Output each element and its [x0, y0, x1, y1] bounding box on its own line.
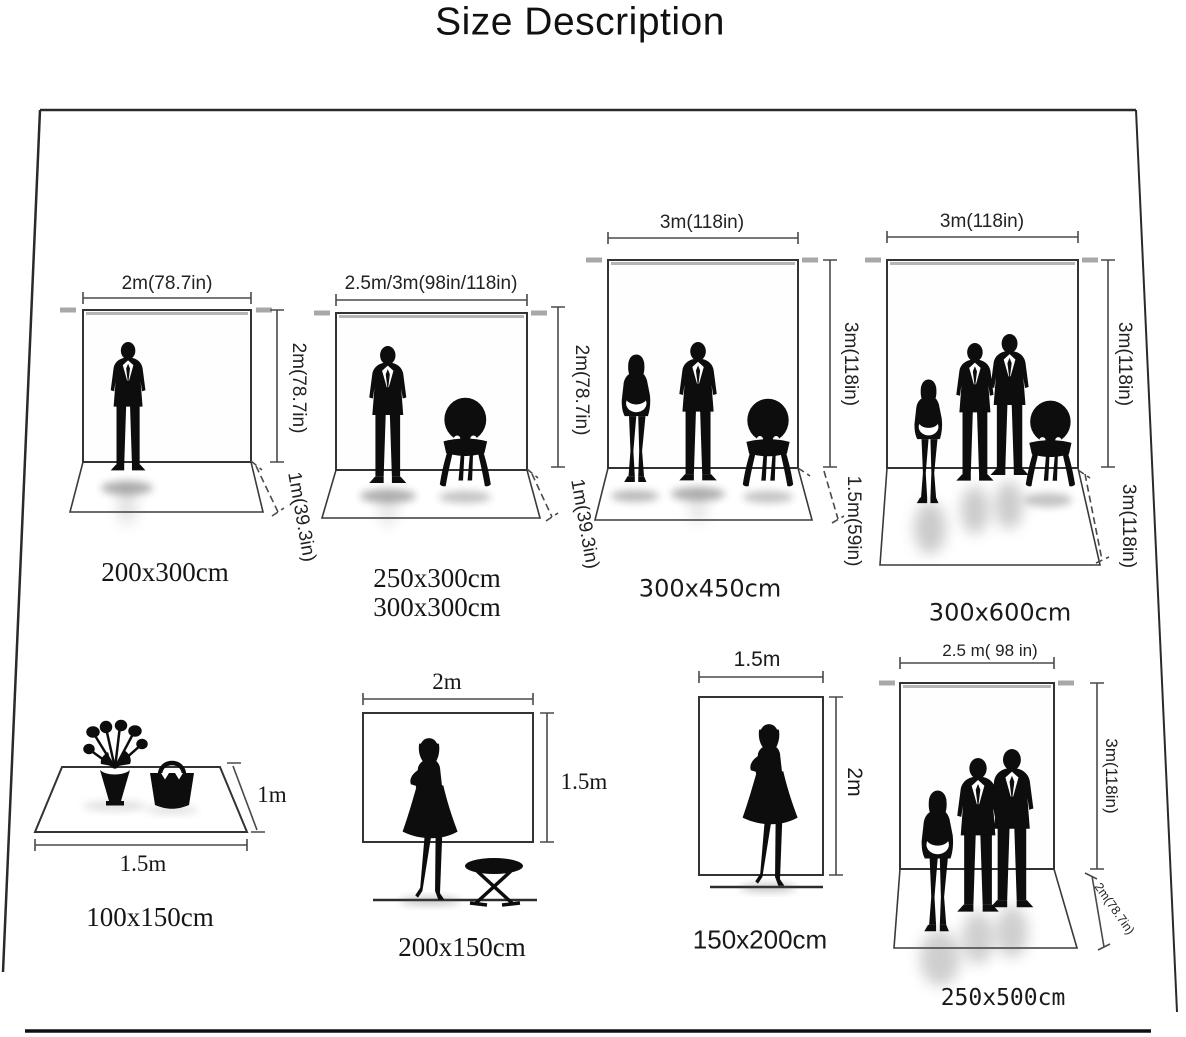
p7-height-dim-label: 2m: [843, 767, 865, 796]
p4-floor-dim-label: 3m(118in): [1118, 484, 1138, 568]
panel-150x200: [699, 671, 843, 892]
p6-width-dim-label: 2m: [432, 670, 461, 694]
panel-100x150: [35, 721, 265, 851]
p6-height-dim-label: 1.5m: [561, 770, 608, 794]
panel-250x300: [314, 294, 565, 526]
panel-300x600: [865, 231, 1115, 565]
p5-width-dim-label: 1.5m: [120, 852, 167, 876]
p1-width-dim-label: 2m(78.7in): [122, 274, 213, 294]
p5-height-dim-label: 1m: [257, 783, 286, 807]
pole-end-icon: [879, 681, 895, 686]
backdrop-panel: [336, 313, 527, 470]
pole-end-icon: [314, 311, 330, 316]
p4-size-label: 300x600cm: [929, 600, 1071, 625]
panel-200x300: [60, 292, 284, 525]
p1-size-label: 200x300cm: [101, 558, 229, 586]
pole-end-icon: [60, 308, 76, 313]
page-title: Size Description: [435, 3, 725, 44]
size-description-diagram: Size Description 2m(78.7in) 2m(78.7in) 1…: [0, 0, 1186, 1037]
backdrop-floor: [70, 462, 263, 512]
pole-end-icon: [802, 258, 818, 263]
floor-mat: [35, 767, 247, 832]
backdrop-floor: [322, 470, 540, 518]
folding-stool-icon: [465, 858, 523, 905]
p7-width-dim-label: 1.5m: [734, 649, 781, 671]
backdrop-panel: [83, 310, 251, 462]
p1-height-dim-label: 2m(78.7in): [288, 343, 308, 434]
panel-300x450: [586, 232, 844, 523]
pole-end-icon: [1082, 258, 1098, 263]
pole-end-icon: [1058, 681, 1074, 686]
p2-size-label-1: 250x300cm: [373, 564, 501, 592]
pole-end-icon: [586, 258, 602, 263]
p8-height-dim-label: 3m(118in): [1102, 738, 1120, 813]
p2-height-dim-label: 2m(78.7in): [571, 345, 591, 436]
pole-end-icon: [865, 258, 881, 263]
p6-size-label: 200x150cm: [398, 933, 526, 961]
p2-width-dim-label: 2.5m/3m(98in/118in): [345, 274, 518, 294]
pole-end-icon: [256, 308, 272, 313]
p5-size-label: 100x150cm: [86, 903, 214, 931]
p3-height-dim-label: 3m(118in): [840, 322, 860, 406]
panel-200x150: [363, 693, 554, 905]
p3-width-dim-label: 3m(118in): [660, 213, 744, 233]
p3-size-label: 300x450cm: [639, 576, 781, 601]
pole-end-icon: [531, 311, 547, 316]
p3-floor-dim-label: 1.5m(59in): [843, 476, 863, 567]
p4-height-dim-label: 3m(118in): [1114, 322, 1134, 406]
panel-250x500: [879, 657, 1110, 986]
p8-size-label: 250x500cm: [941, 986, 1066, 1010]
p7-size-label: 150x200cm: [693, 926, 827, 953]
p4-width-dim-label: 3m(118in): [940, 212, 1024, 232]
backdrop-floor: [880, 468, 1100, 565]
p2-size-label-2: 300x300cm: [373, 593, 501, 621]
p8-width-dim-label: 2.5 m( 98 in): [942, 642, 1037, 660]
